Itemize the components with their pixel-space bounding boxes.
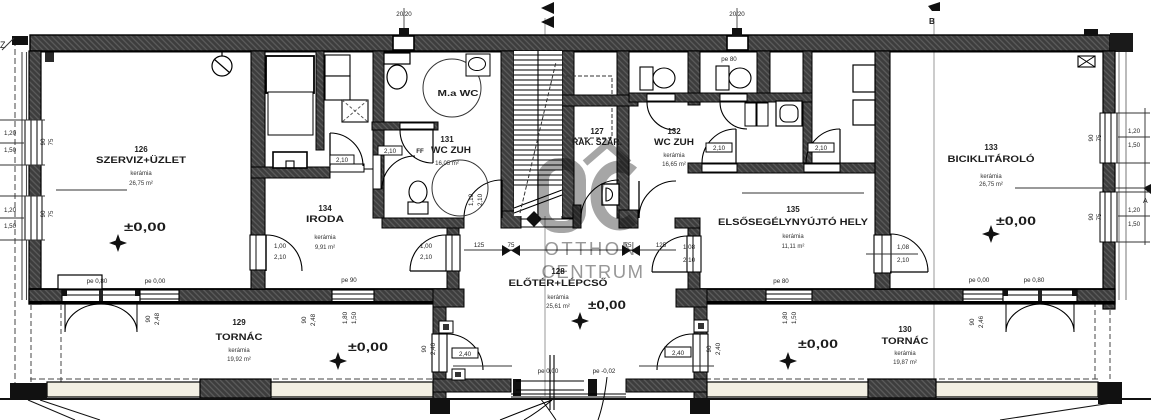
svg-text:ELSŐSEGÉLYNYÚJTÓ HELY: ELSŐSEGÉLYNYÚJTÓ HELY	[718, 216, 869, 227]
svg-text:2,46: 2,46	[978, 315, 985, 328]
svg-text:2,10: 2,10	[815, 145, 828, 152]
svg-text:1,20: 1,20	[4, 130, 17, 137]
svg-text:90: 90	[421, 345, 428, 352]
svg-text:1,00: 1,00	[420, 243, 433, 250]
svg-text:75: 75	[508, 242, 515, 249]
svg-text:WC ZUH: WC ZUH	[654, 137, 694, 147]
svg-text:pe 0,00: pe 0,00	[538, 368, 559, 375]
svg-text:pe 90: pe 90	[341, 277, 357, 284]
svg-text:132: 132	[667, 127, 681, 136]
svg-text:2,48: 2,48	[154, 312, 161, 325]
svg-text:1,50: 1,50	[4, 223, 17, 230]
svg-text:FF: FF	[416, 148, 424, 155]
svg-text:129: 129	[232, 318, 246, 327]
svg-text:19,92 m²: 19,92 m²	[227, 357, 251, 363]
svg-text:2,10: 2,10	[897, 257, 910, 264]
svg-text:kerámia: kerámia	[314, 235, 336, 241]
svg-text:1,80: 1,80	[782, 311, 789, 324]
svg-text:CENTRUM: CENTRUM	[542, 261, 645, 282]
svg-text:1,50: 1,50	[1128, 221, 1141, 228]
svg-text:75: 75	[1096, 134, 1103, 141]
svg-text:19,87 m²: 19,87 m²	[893, 360, 917, 366]
svg-text:1,50: 1,50	[1128, 142, 1141, 149]
svg-text:90: 90	[145, 315, 152, 322]
svg-text:kerámia: kerámia	[980, 174, 1002, 180]
svg-text:±0,00: ±0,00	[996, 216, 1036, 228]
svg-text:134: 134	[318, 204, 332, 213]
svg-text:1,00: 1,00	[274, 243, 287, 250]
svg-text:75: 75	[48, 138, 55, 145]
svg-text:1,80: 1,80	[342, 311, 349, 324]
svg-text:16,65 m²: 16,65 m²	[662, 162, 686, 168]
svg-text:A: A	[1143, 198, 1148, 205]
svg-text:2,10: 2,10	[713, 145, 726, 152]
svg-text:125: 125	[474, 242, 485, 249]
svg-text:IRODA: IRODA	[306, 214, 344, 224]
svg-text:pe 80: pe 80	[721, 56, 737, 63]
svg-text:kerámia: kerámia	[130, 171, 152, 177]
svg-text:2,40: 2,40	[430, 342, 437, 355]
svg-text:1,10: 1,10	[468, 193, 475, 206]
svg-text:2,10: 2,10	[683, 257, 696, 264]
svg-text:pe 80: pe 80	[773, 278, 789, 285]
svg-text:75: 75	[48, 210, 55, 217]
svg-text:2,10: 2,10	[420, 254, 433, 261]
svg-text:2,40: 2,40	[672, 350, 685, 357]
svg-text:1,08: 1,08	[683, 244, 696, 251]
svg-text:BICIKLITÁROLÓ: BICIKLITÁROLÓ	[948, 153, 1035, 164]
svg-text:90: 90	[40, 138, 47, 145]
svg-text:135: 135	[786, 205, 800, 214]
svg-text:pe 0,00: pe 0,00	[969, 277, 990, 284]
svg-text:90: 90	[1088, 134, 1095, 141]
svg-text:130: 130	[898, 325, 912, 334]
svg-text:90: 90	[706, 345, 713, 352]
svg-text:127: 127	[590, 127, 604, 136]
svg-text:WC ZUH: WC ZUH	[431, 145, 471, 155]
svg-text:90: 90	[969, 318, 976, 325]
svg-text:126: 126	[134, 145, 148, 154]
svg-text:kerámia: kerámia	[894, 351, 916, 357]
svg-text:2,40: 2,40	[459, 351, 472, 358]
svg-text:B: B	[929, 17, 935, 26]
svg-text:±0,00: ±0,00	[124, 222, 166, 234]
svg-text:±0,00: ±0,00	[798, 339, 838, 351]
svg-text:pe 0,80: pe 0,80	[1024, 277, 1045, 284]
svg-text:2,10: 2,10	[477, 193, 484, 206]
svg-text:2,10: 2,10	[336, 157, 349, 164]
svg-text:±0,00: ±0,00	[348, 342, 388, 354]
svg-text:90: 90	[301, 316, 308, 323]
svg-text:125: 125	[656, 242, 667, 249]
svg-text:2,48: 2,48	[310, 313, 317, 326]
svg-text:kerámia: kerámia	[228, 348, 250, 354]
svg-text:90: 90	[40, 210, 47, 217]
svg-text:kerámia: kerámia	[782, 234, 804, 240]
svg-text:kerámia: kerámia	[663, 153, 685, 159]
svg-text:75: 75	[1096, 213, 1103, 220]
svg-text:1,08: 1,08	[897, 244, 910, 251]
svg-text:kerámia: kerámia	[547, 295, 569, 301]
svg-text:1,50: 1,50	[791, 311, 798, 324]
svg-text:1,50: 1,50	[4, 147, 17, 154]
svg-text:133: 133	[984, 143, 998, 152]
svg-text:9,91 m²: 9,91 m²	[315, 245, 335, 251]
svg-text:pe 0,00: pe 0,00	[145, 278, 166, 285]
svg-text:OTTHON: OTTHON	[544, 238, 637, 259]
svg-text:TORNÁC: TORNÁC	[882, 336, 929, 346]
svg-text:16,05 m²: 16,05 m²	[435, 161, 459, 167]
svg-text:26,75 m²: 26,75 m²	[979, 182, 1003, 188]
svg-text:TORNÁC: TORNÁC	[216, 332, 263, 342]
svg-text:M.a WC: M.a WC	[438, 89, 479, 98]
svg-text:20/20: 20/20	[729, 11, 745, 18]
svg-text:11,11 m²: 11,11 m²	[782, 244, 805, 250]
svg-text:1,20: 1,20	[1128, 207, 1141, 214]
svg-text:RAK. SZÁR.: RAK. SZÁR.	[572, 137, 622, 147]
svg-text:2,10: 2,10	[274, 254, 287, 261]
svg-text:pe 0,80: pe 0,80	[87, 278, 108, 285]
svg-text:26,75 m²: 26,75 m²	[129, 181, 153, 187]
svg-text:SZERVIZ+ÜZLET: SZERVIZ+ÜZLET	[96, 155, 186, 165]
svg-text:131: 131	[440, 135, 454, 144]
svg-text:1,50: 1,50	[351, 311, 358, 324]
svg-text:25,61 m²: 25,61 m²	[546, 304, 570, 310]
svg-text:pe -0,02: pe -0,02	[593, 368, 616, 375]
svg-text:1,20: 1,20	[1128, 128, 1141, 135]
svg-text:2,40: 2,40	[715, 342, 722, 355]
svg-text:1,20: 1,20	[4, 207, 17, 214]
svg-text:20/20: 20/20	[396, 11, 412, 18]
svg-text:2,10: 2,10	[384, 148, 397, 155]
svg-text:±0,00: ±0,00	[588, 300, 626, 312]
svg-text:90: 90	[1088, 213, 1095, 220]
